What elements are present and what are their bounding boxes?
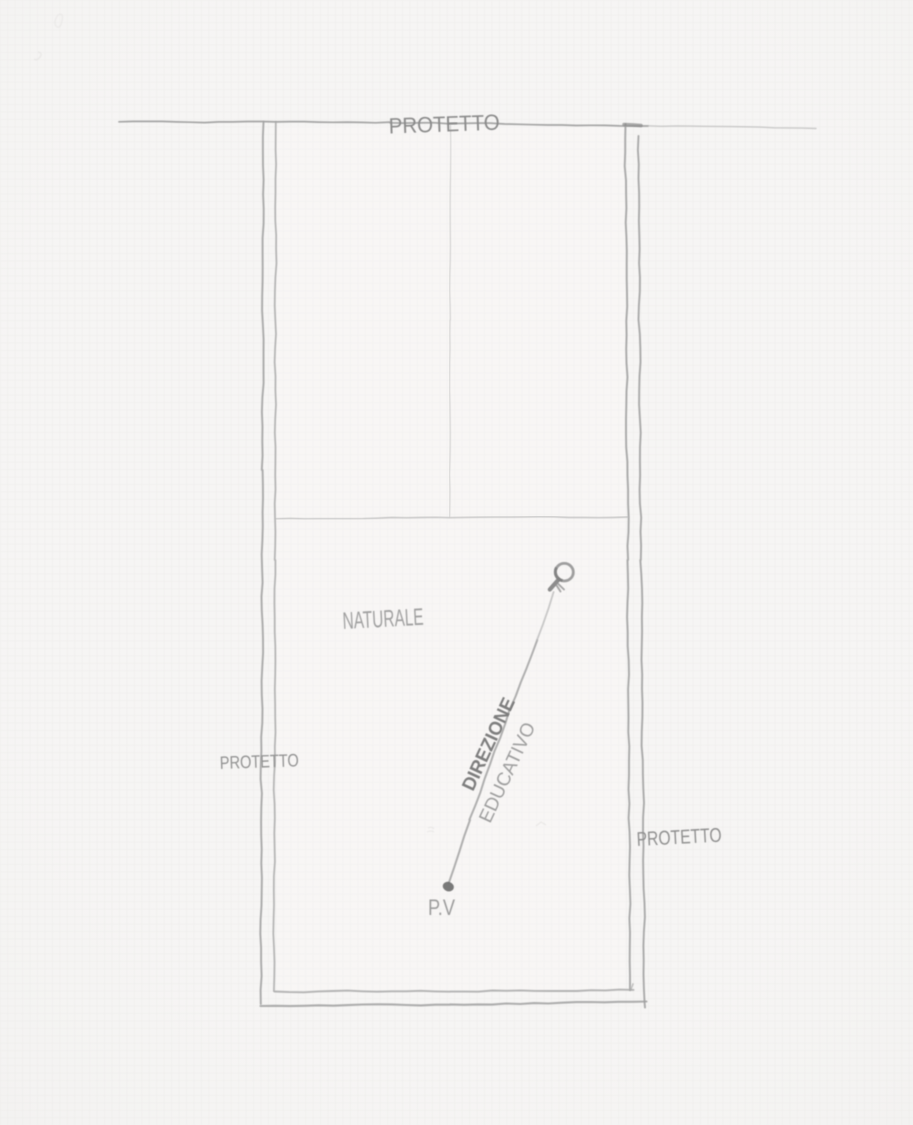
svg-text:PROTETTO: PROTETTO — [219, 750, 299, 773]
svg-text:P.V: P.V — [428, 895, 455, 920]
svg-text:PROTETTO: PROTETTO — [636, 825, 722, 851]
svg-text:NATURALE: NATURALE — [342, 604, 424, 635]
svg-text:PROTETTO: PROTETTO — [388, 110, 500, 139]
